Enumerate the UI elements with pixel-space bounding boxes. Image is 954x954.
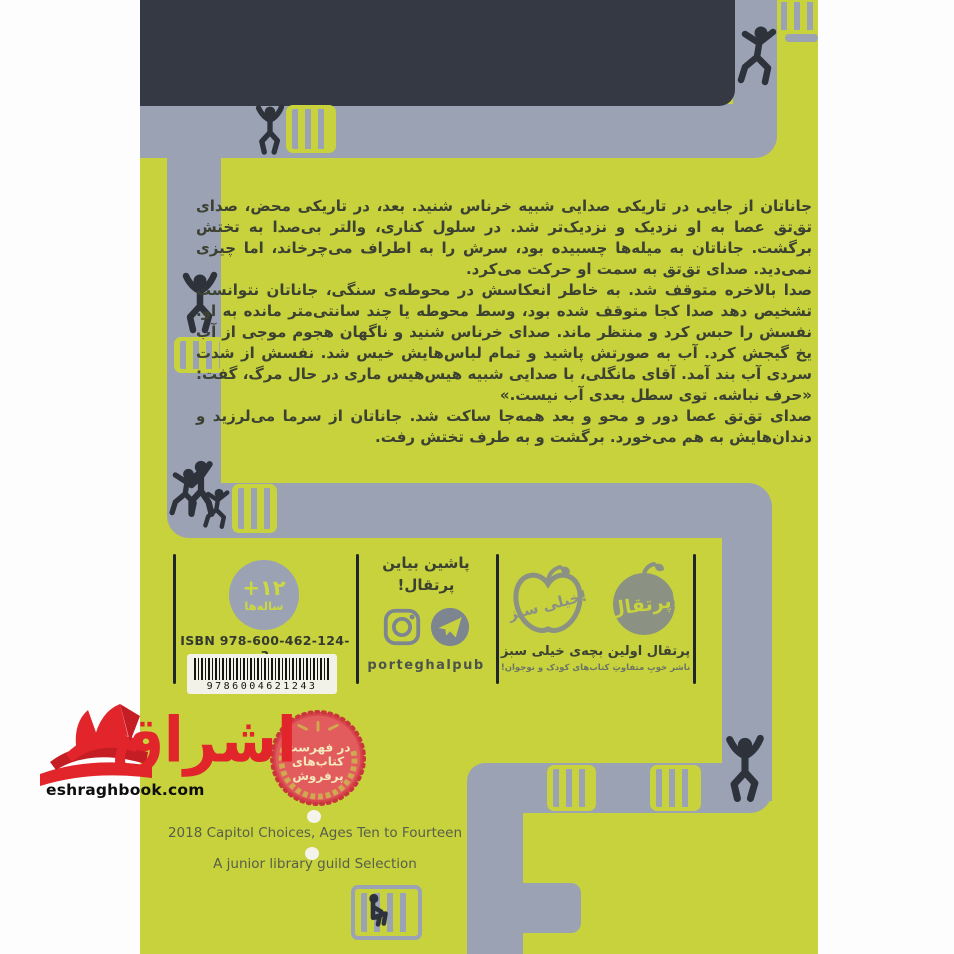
child-silhouette-runner-band-middle-2 xyxy=(202,484,232,534)
age-badge: +۱۲ ساله‌ها xyxy=(229,560,299,630)
footer-divider xyxy=(693,554,696,684)
seal-line-3: پرفروش xyxy=(292,769,343,784)
vent-grate-top-right xyxy=(781,2,817,30)
eshragh-logo-text: اشراق xyxy=(112,686,297,794)
child-silhouette-climber-right-pipe xyxy=(721,734,769,804)
synopsis-paragraph: جاناتان از جایی در تاریکی صدایی شبیه خرن… xyxy=(196,196,812,280)
vent-grate-band-top xyxy=(286,105,336,153)
child-silhouette-runner-top-right xyxy=(736,24,780,88)
vent-grate-band-middle xyxy=(232,484,277,533)
vent-grate-sitting-child xyxy=(351,885,422,940)
watermark-url: eshraghbook.com xyxy=(46,781,205,799)
vent-grate-band-bottom-1 xyxy=(547,765,596,811)
book-back-cover-photo: جاناتان از جایی در تاریکی صدایی شبیه خرن… xyxy=(0,0,954,954)
social-heading-line1: پاشین بیاین xyxy=(358,552,494,574)
publisher-box: خیلی سبز! پرتقال! پرتقال اولین بچه‌ی خیل… xyxy=(498,550,693,690)
footer-divider xyxy=(173,554,176,684)
pipe-stub-bottom xyxy=(467,883,581,933)
synopsis-paragraph: صدا بالاخره متوقف شد. به خاطر انعکاسش در… xyxy=(196,280,812,406)
publisher-tagline: پرتقال اولین بچه‌ی خیلی سبز xyxy=(498,644,693,659)
synopsis-paragraph: صدای تق‌تق عصا دور و محو و بعد همه‌جا سا… xyxy=(196,406,812,448)
vent-grate-band-bottom-2 xyxy=(650,765,701,811)
book-cover: جاناتان از جایی در تاریکی صدایی شبیه خرن… xyxy=(140,0,818,954)
child-silhouette-dancer-band-top xyxy=(252,102,288,158)
award-line-2: A junior library guild Selection xyxy=(155,856,475,872)
instagram-icon xyxy=(381,606,423,652)
award-line-1: 2018 Capitol Choices, Ages Ten to Fourte… xyxy=(155,825,475,841)
vent-grate-top-right-ledge xyxy=(785,34,818,42)
synopsis-text: جاناتان از جایی در تاریکی صدایی شبیه خرن… xyxy=(196,196,812,448)
telegram-icon xyxy=(429,606,471,652)
child-silhouette-runner-band-middle-1 xyxy=(168,460,204,526)
eshragh-logo: اشراق eshraghbook.com xyxy=(36,688,276,810)
age-badge-label: ساله‌ها xyxy=(244,599,283,613)
child-silhouette-sitting xyxy=(363,892,393,930)
publisher-orange-logo: پرتقال! xyxy=(604,560,684,644)
publisher-apple-logo: خیلی سبز! xyxy=(506,562,590,648)
seal-line-2: کتاب‌های xyxy=(292,755,344,769)
social-heading-line2: پرتقال! xyxy=(358,574,494,596)
social-box: پاشین بیاین پرتقال! xyxy=(358,552,494,673)
decorative-dot xyxy=(307,810,321,823)
dark-header-block xyxy=(140,0,735,106)
barcode-bars xyxy=(194,658,330,680)
publisher-subtitle: ناشر خوبِ متفاوتِ کتاب‌های کودک و نوجوان… xyxy=(498,663,693,673)
age-badge-value: +۱۲ xyxy=(242,577,285,599)
social-handle: porteghalpub xyxy=(358,658,494,673)
pipe-band-top xyxy=(140,104,777,158)
